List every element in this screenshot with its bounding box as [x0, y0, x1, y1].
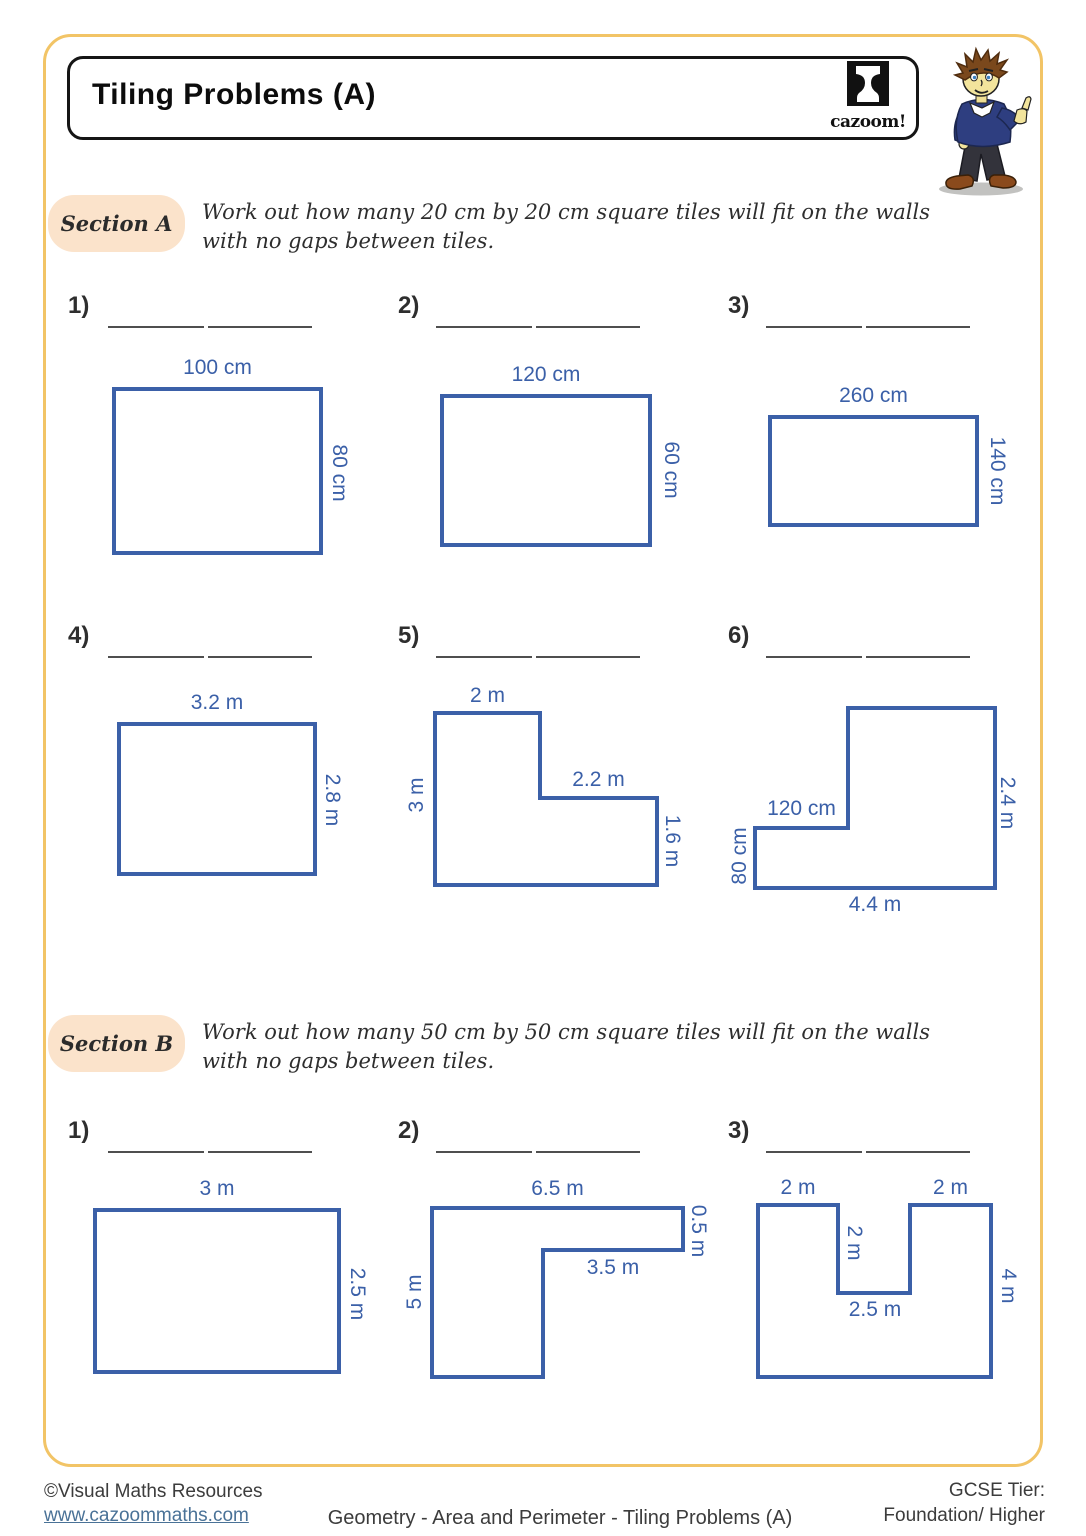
problem-a4-answer-line: [108, 632, 312, 658]
problem-b2-number: 2): [398, 1117, 419, 1145]
problem-a5-number: 5): [398, 622, 419, 650]
section-a-instruction-line1: Work out how many 20 cm by 20 cm square …: [202, 198, 930, 227]
problem-a4-shape: [117, 722, 317, 876]
dim-a6-left: 80 cm: [728, 827, 752, 884]
cazoom-logo: cazoom!: [822, 61, 914, 132]
dim-b1-top: 3 m: [93, 1177, 341, 1201]
footer-center-text: Geometry - Area and Perimeter - Tiling P…: [328, 1507, 793, 1530]
problem-b2-answer-line: [436, 1127, 640, 1153]
dim-a6-right: 2.4 m: [995, 777, 1019, 830]
dim-b3-top-right: 2 m: [910, 1176, 991, 1200]
dim-b2-mid: 3.5 m: [543, 1256, 683, 1280]
section-b-label: Section B: [60, 1031, 173, 1056]
dim-b3-top-left: 2 m: [758, 1176, 838, 1200]
problem-a3-answer-line: [766, 302, 970, 328]
dim-a5-right: 1.6 m: [660, 815, 684, 868]
dim-b3-notch: 2 m: [842, 1225, 866, 1260]
problem-a4-number: 4): [68, 622, 89, 650]
dim-a5-top: 2 m: [435, 684, 540, 708]
dim-a1-top: 100 cm: [112, 356, 323, 380]
section-a-instruction: Work out how many 20 cm by 20 cm square …: [202, 198, 930, 256]
dim-b3-notch-bottom: 2.5 m: [820, 1298, 930, 1322]
problem-b2-shape: [430, 1206, 685, 1379]
section-a-pill: Section A: [48, 195, 185, 252]
cazoom-wordmark: cazoom!: [822, 112, 914, 132]
problem-a1-answer-line: [108, 302, 312, 328]
problem-a1-number: 1): [68, 292, 89, 320]
worksheet-page: Tiling Problems (A) cazoom!: [0, 0, 1086, 1536]
dim-a1-right: 80 cm: [327, 444, 351, 501]
footer-copyright: ©Visual Maths Resources: [44, 1481, 263, 1503]
footer-website-link[interactable]: www.cazoommaths.com: [44, 1505, 249, 1527]
section-b-instruction-line2: with no gaps between tiles.: [202, 1047, 930, 1076]
dim-a3-right: 140 cm: [985, 437, 1009, 506]
section-a-instruction-line2: with no gaps between tiles.: [202, 227, 930, 256]
dim-a5-mid: 2.2 m: [540, 768, 657, 792]
dim-b2-left: 5 m: [403, 1274, 427, 1309]
dim-b2-right: 0.5 m: [686, 1205, 710, 1258]
dim-a4-right: 2.8 m: [320, 774, 344, 827]
section-b-instruction-line1: Work out how many 50 cm by 50 cm square …: [202, 1018, 930, 1047]
dim-b1-right: 2.5 m: [345, 1268, 369, 1321]
dim-a2-top: 120 cm: [440, 363, 652, 387]
dim-a4-top: 3.2 m: [117, 691, 317, 715]
problem-b3-answer-line: [766, 1127, 970, 1153]
problem-a6-number: 6): [728, 622, 749, 650]
page-title: Tiling Problems (A): [92, 78, 376, 112]
problem-b3-shape: [756, 1203, 993, 1379]
problem-a3-shape: [768, 415, 979, 527]
problem-a5-answer-line: [436, 632, 640, 658]
section-b-pill: Section B: [48, 1015, 185, 1072]
footer-tier-label: GCSE Tier:: [949, 1480, 1045, 1502]
dim-b3-right: 4 m: [996, 1268, 1020, 1303]
section-a-label: Section A: [61, 211, 173, 236]
problem-b1-number: 1): [68, 1117, 89, 1145]
dim-a5-left: 3 m: [405, 777, 429, 812]
problem-b1-shape: [93, 1208, 341, 1374]
dim-a2-right: 60 cm: [659, 441, 683, 498]
problem-b1-answer-line: [108, 1127, 312, 1153]
problem-a2-number: 2): [398, 292, 419, 320]
cazoom-logo-icon: [847, 61, 889, 106]
problem-b3-number: 3): [728, 1117, 749, 1145]
problem-a2-answer-line: [436, 302, 640, 328]
dim-a3-top: 260 cm: [768, 384, 979, 408]
problem-a5-shape: [433, 711, 659, 887]
problem-a2-shape: [440, 394, 652, 547]
dim-a6-bottom: 4.4 m: [755, 893, 995, 917]
mascot-character: [923, 42, 1043, 198]
section-b-instruction: Work out how many 50 cm by 50 cm square …: [202, 1018, 930, 1076]
dim-b2-top: 6.5 m: [432, 1177, 683, 1201]
problem-a6-answer-line: [766, 632, 970, 658]
problem-a1-shape: [112, 387, 323, 555]
dim-a6-step: 120 cm: [755, 797, 848, 821]
footer-tier-value: Foundation/ Higher: [883, 1505, 1045, 1527]
problem-a3-number: 3): [728, 292, 749, 320]
